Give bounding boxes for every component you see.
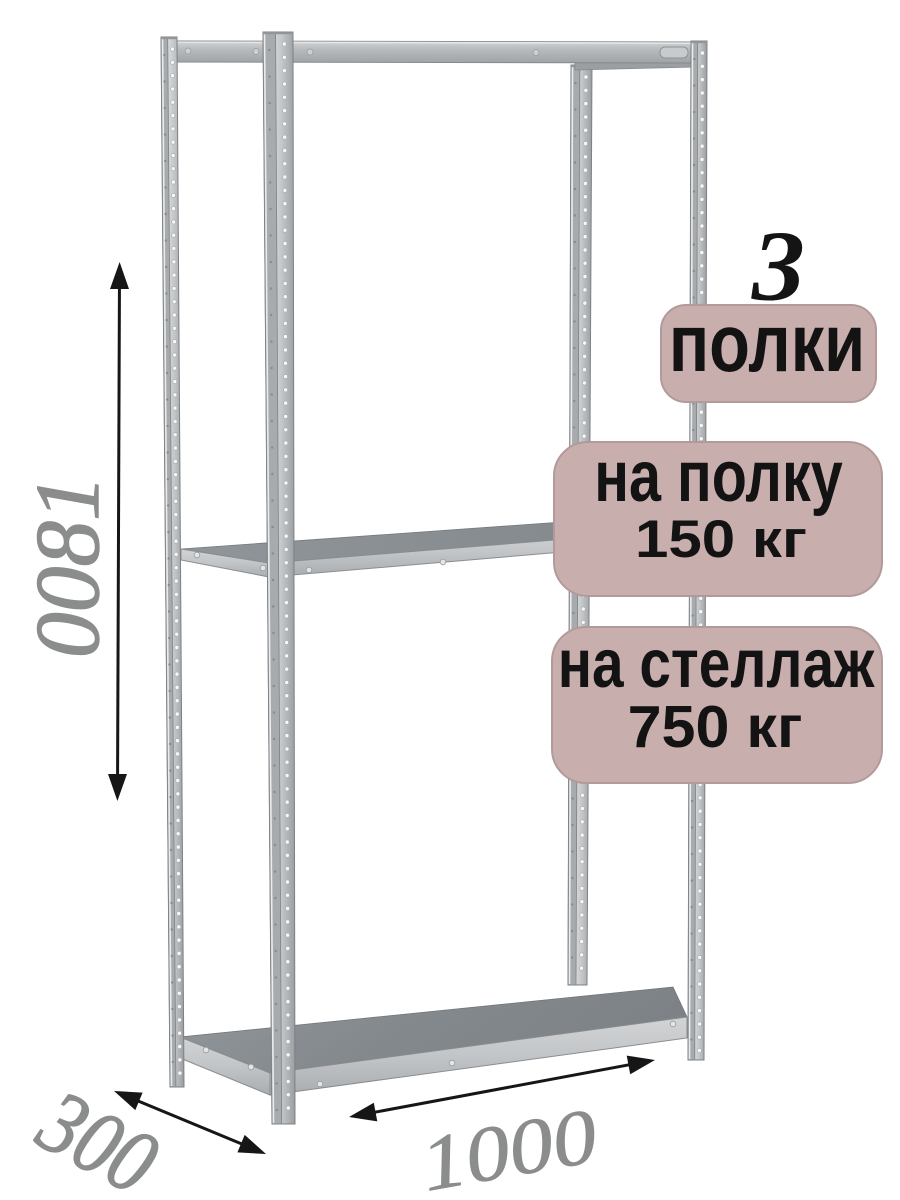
svg-text:150 кг: 150 кг: [635, 510, 807, 569]
svg-text:на полку: на полку: [594, 436, 842, 517]
svg-text:на стеллаж: на стеллаж: [558, 626, 876, 702]
svg-text:300: 300: [22, 1071, 172, 1200]
svg-text:750 кг: 750 кг: [628, 694, 803, 760]
svg-text:0081: 0081: [16, 475, 118, 658]
svg-text:1000: 1000: [415, 1093, 604, 1200]
svg-text:полки: полки: [669, 298, 865, 389]
